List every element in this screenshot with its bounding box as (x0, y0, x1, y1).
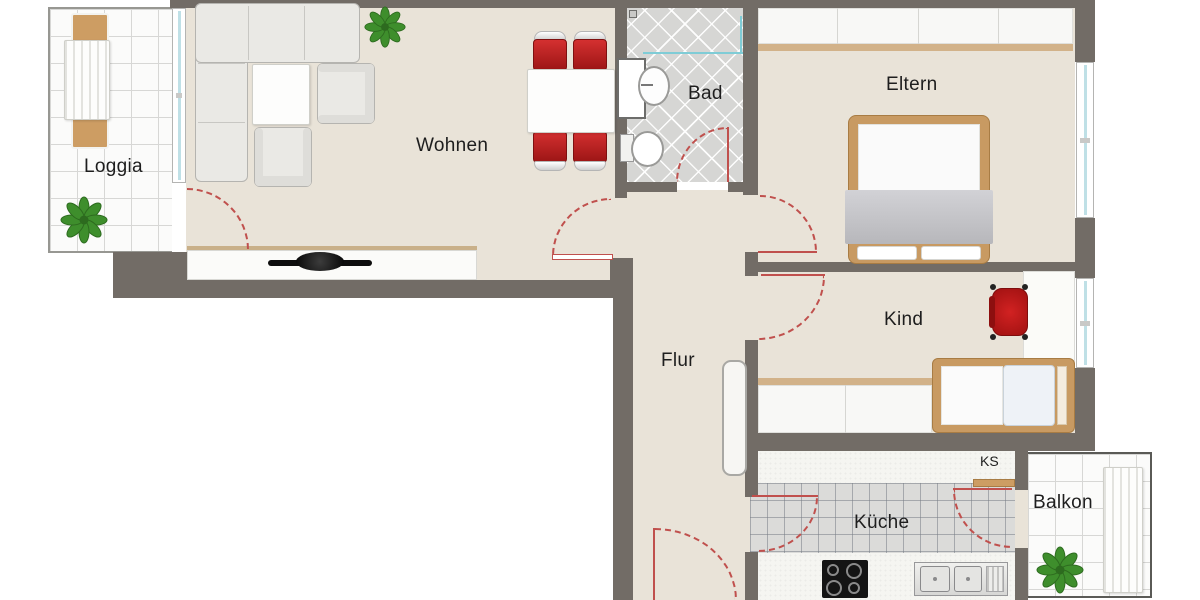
loggia-chair-bottom (71, 117, 109, 149)
wall-flur-east-c (745, 552, 758, 600)
kind-window (1076, 278, 1094, 368)
wall-kueche-east-a (1015, 451, 1028, 490)
stove-burner (826, 580, 842, 596)
dining-chair (573, 131, 607, 171)
balkon-table (1103, 467, 1143, 593)
shower-drain-icon (629, 10, 637, 18)
kind-wardrobe-divider (845, 385, 846, 433)
room-label-ks: KS (980, 453, 999, 469)
wall-wohnen-south (187, 280, 633, 298)
sofa-cushion-line (198, 63, 245, 64)
kind-bed-pillow (1003, 365, 1055, 426)
dining-chair-seat (573, 131, 607, 163)
kind-window-handle (1080, 321, 1090, 326)
dining-chair (533, 131, 567, 171)
shower-screen-line (740, 16, 742, 54)
dining-chair-seat (573, 39, 607, 71)
dining-chair-back (534, 161, 566, 171)
room-label-kueche: Küche (854, 512, 909, 534)
washbasin-tap (641, 84, 653, 86)
wall-east-1 (1075, 8, 1095, 62)
chair-caster (990, 284, 996, 290)
wall-wohnen-door-jamb (610, 258, 633, 288)
room-label-wohnen: Wohnen (416, 135, 488, 157)
room-label-bad: Bad (688, 83, 723, 105)
stove-burner (846, 563, 862, 579)
shower-screen-line (643, 52, 743, 54)
wohnen-plant-icon (364, 6, 406, 53)
dining-chair-seat (533, 131, 567, 163)
eltern-wardrobe-front (758, 44, 1073, 51)
sink-drain-dot (966, 577, 970, 581)
eltern-wardrobe (758, 8, 1073, 44)
loggia-plant-icon (60, 196, 108, 249)
loggia-window (172, 8, 186, 183)
flur-cabinet (722, 360, 747, 476)
kind-bed-headboard (1057, 366, 1067, 425)
chair-caster (1022, 334, 1028, 340)
dining-chair (573, 31, 607, 71)
fridge-ks (973, 479, 1015, 487)
washbasin (638, 66, 670, 106)
wall-sw-corner (113, 252, 187, 298)
room-label-flur: Flur (661, 350, 695, 372)
wall-bad-east (743, 8, 758, 195)
room-label-balkon: Balkon (1033, 492, 1093, 514)
sofa-cushion-line (304, 6, 305, 60)
wall-east-2 (1075, 218, 1095, 278)
wall-kind-south (745, 433, 1095, 451)
sofa-cushion-line (248, 6, 249, 60)
sink-drain-dot (933, 577, 937, 581)
coffee-table (252, 64, 310, 125)
chair-caster (1022, 284, 1028, 290)
eltern-bed-mattress (858, 124, 980, 192)
eltern-bed-blanket (845, 190, 993, 244)
stove-burner (827, 564, 839, 576)
chair-caster (990, 334, 996, 340)
dining-chair (533, 31, 567, 71)
sink-drainer (986, 566, 1004, 592)
dining-table (527, 69, 615, 133)
sofa-cushion-line (198, 122, 245, 123)
balkon-plant-icon (1036, 546, 1084, 599)
stove-burner (848, 582, 860, 594)
room-label-eltern: Eltern (886, 74, 937, 96)
room-label-loggia: Loggia (84, 156, 143, 178)
armchair-back (255, 176, 311, 186)
eltern-wardrobe-divider (998, 8, 999, 44)
kind-desk-chair-back (989, 296, 995, 328)
kind-bed-mattress (941, 366, 1003, 425)
loveseat-back (365, 64, 374, 123)
tv-screen (296, 252, 344, 271)
eltern-wardrobe-divider (918, 8, 919, 44)
dining-chair-back (574, 161, 606, 171)
room-label-kind: Kind (884, 309, 923, 331)
kind-desk-chair (992, 288, 1028, 336)
dining-chair-seat (533, 39, 567, 71)
sofa-top-section (195, 3, 360, 63)
loggia-table (64, 40, 110, 120)
kind-wardrobe-front (758, 378, 932, 385)
eltern-window-handle (1080, 138, 1090, 143)
wall-flur-west (613, 298, 633, 600)
toilet-bowl (631, 131, 664, 167)
floor-plan: Loggia Wohnen Bad Eltern Kind Flur Küche… (0, 0, 1200, 600)
wall-kueche-east-b (1015, 548, 1028, 600)
eltern-wardrobe-divider (837, 8, 838, 44)
wall-bad-south-left (615, 182, 677, 192)
kind-desk (1023, 271, 1075, 361)
eltern-bed-pillow (857, 246, 917, 260)
loggia-window-handle (176, 93, 182, 98)
eltern-window (1076, 62, 1094, 218)
eltern-bed-pillow (921, 246, 981, 260)
wall-east-3 (1075, 368, 1095, 433)
